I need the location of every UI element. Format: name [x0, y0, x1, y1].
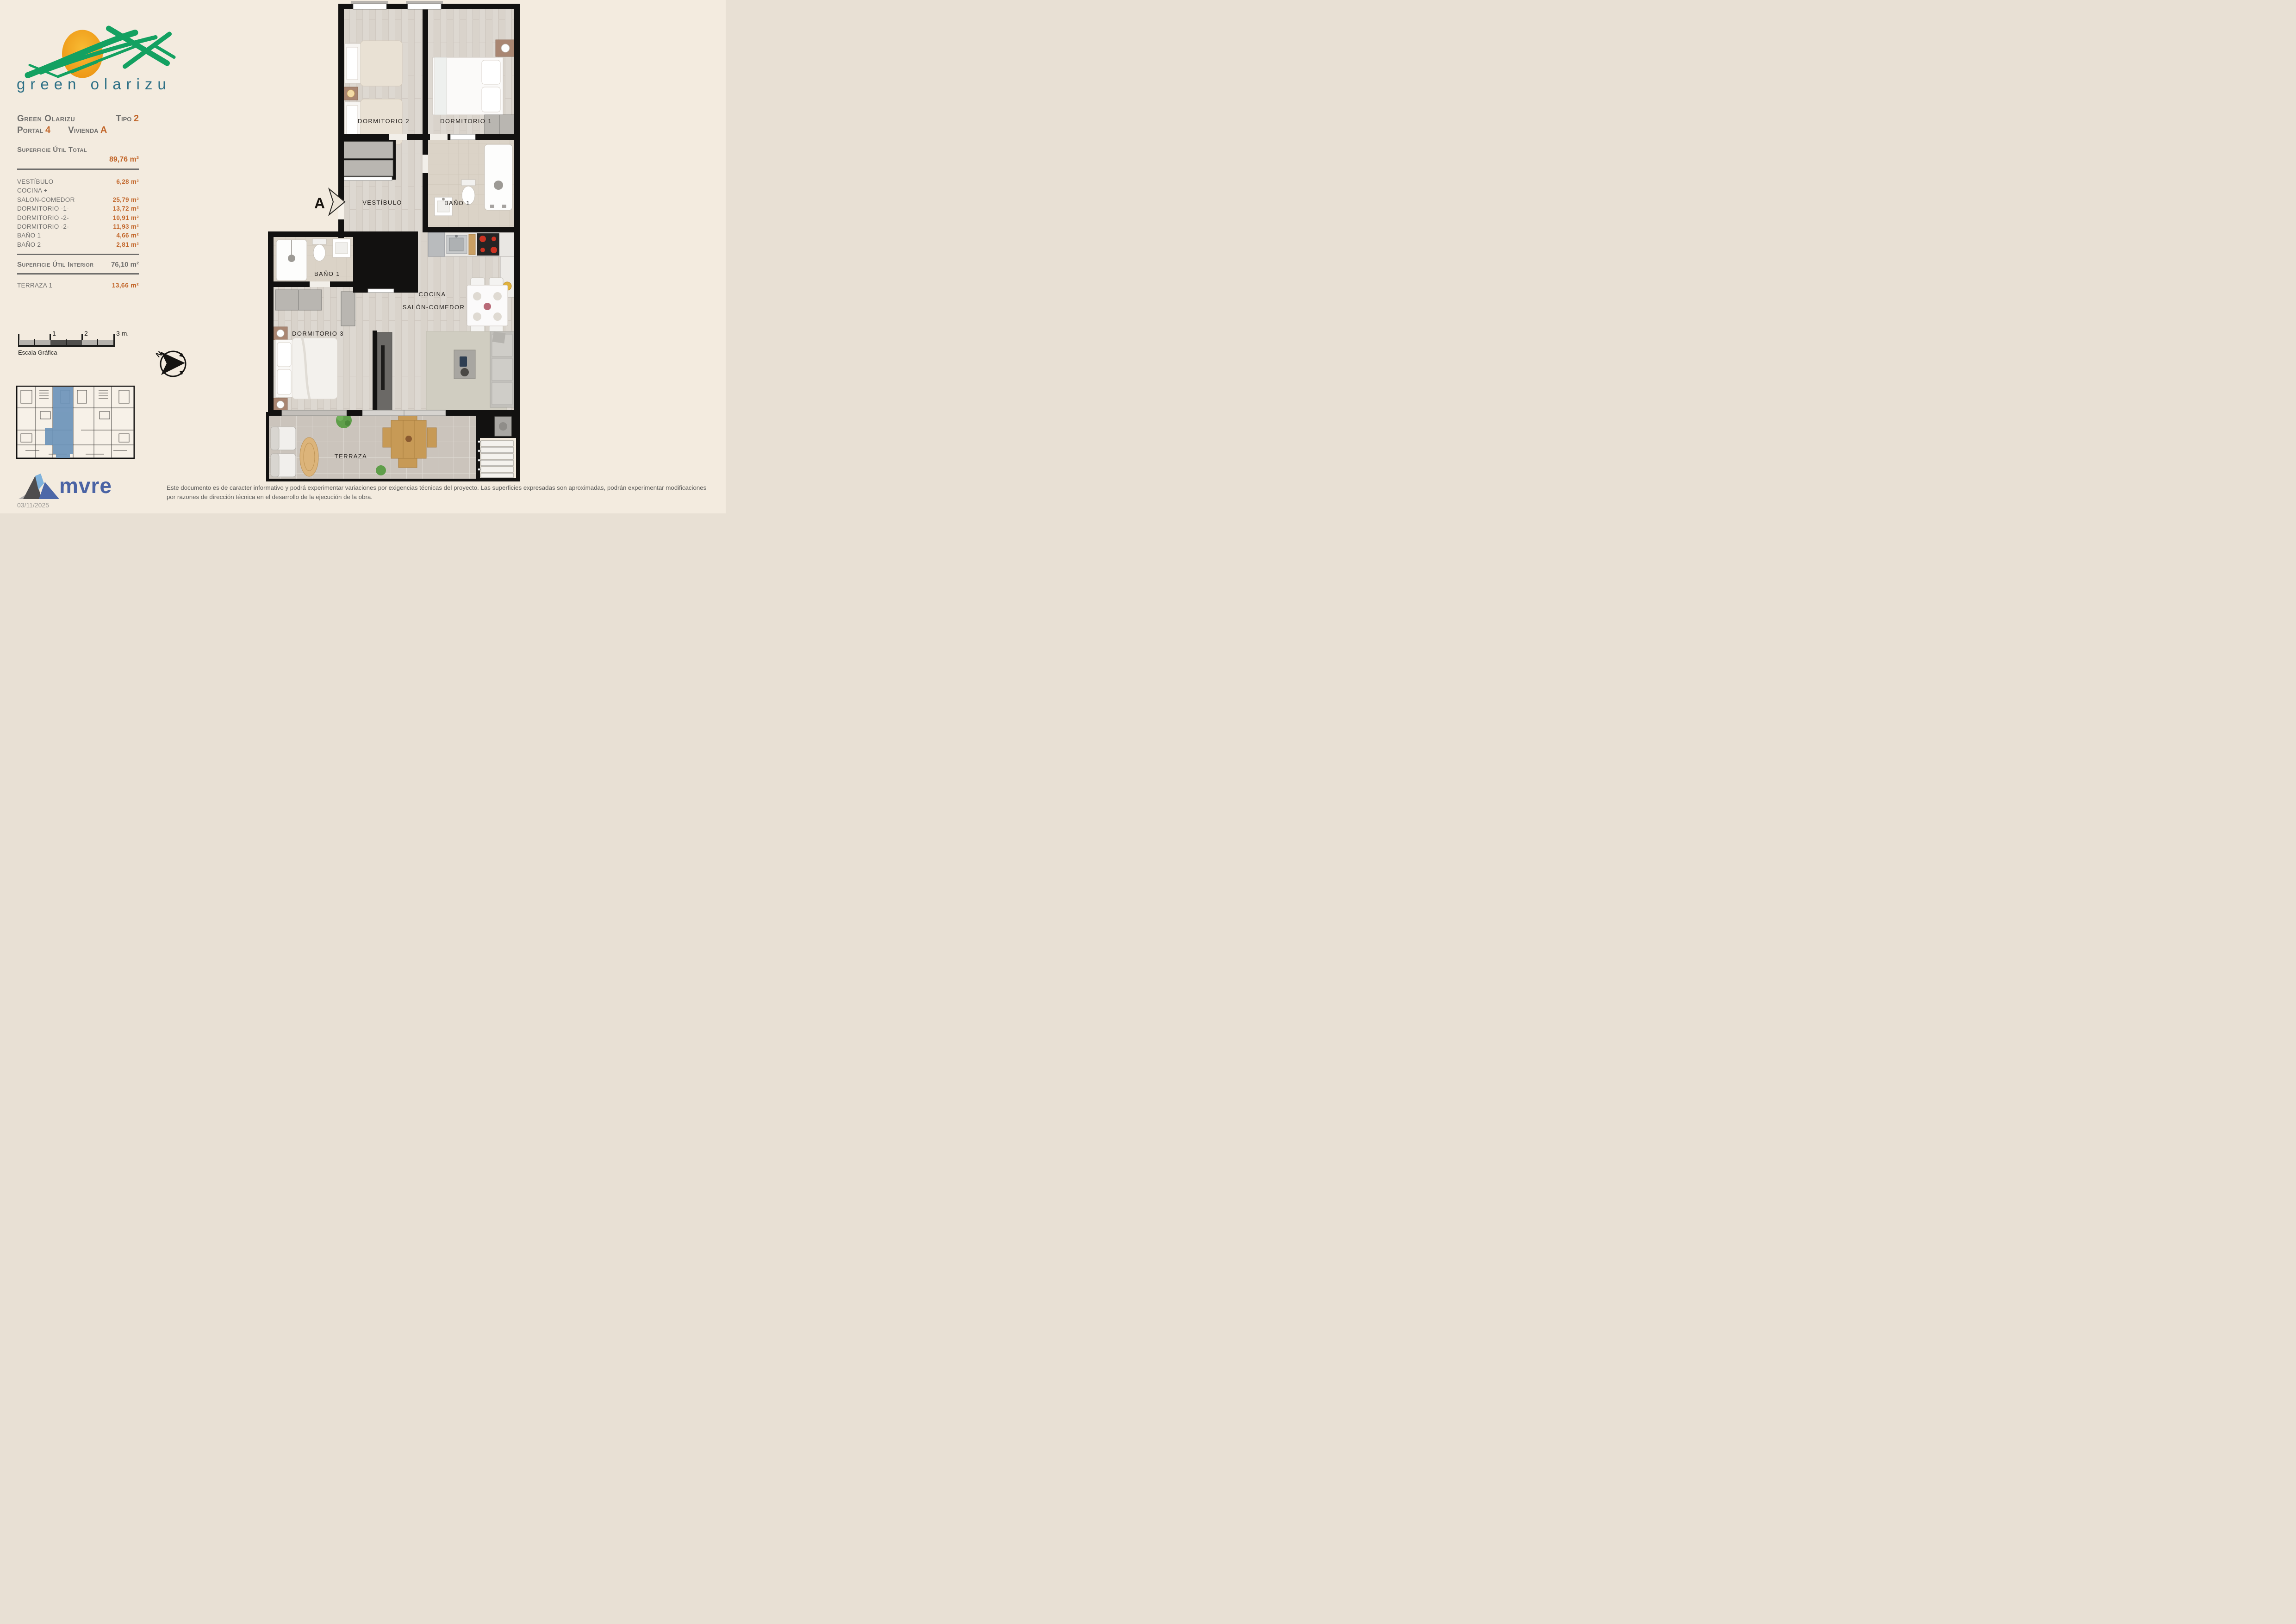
scale-tick-3: 3 m.: [116, 330, 129, 337]
room-name: SALON-COMEDOR: [17, 195, 75, 204]
room-row: COCINA +: [17, 186, 139, 195]
label-dormitorio1: DORMITORIO 1: [440, 118, 492, 125]
room-row: DORMITORIO -2-11,93 m²: [17, 222, 139, 231]
label-dormitorio3: DORMITORIO 3: [292, 330, 344, 337]
brand-wordmark: green olarizu: [17, 75, 171, 93]
room-name: DORMITORIO -2-: [17, 222, 69, 231]
interior-area-row: Superficie Útil Interior 76,10 m²: [17, 261, 139, 269]
room-area-table: VESTÍBULO6,28 m² COCINA + SALON-COMEDOR2…: [17, 177, 139, 249]
divider: [17, 169, 139, 170]
label-cocina: COCINA: [419, 291, 446, 298]
room-name: DORMITORIO -1-: [17, 204, 69, 213]
portal-label: Portal: [17, 125, 43, 135]
room-name: COCINA +: [17, 186, 48, 195]
graphic-scale-bar: 1 2 3 m. Escala Gráfica: [17, 330, 137, 356]
dining-set: [467, 278, 508, 334]
room-name: DORMITORIO -2-: [17, 213, 69, 222]
room-row: DORMITORIO -1-13,72 m²: [17, 204, 139, 213]
terraza-area-row: TERRAZA 1 13,66 m²: [17, 281, 139, 290]
document-date: 03/11/2025: [17, 501, 49, 509]
vivienda-label: Vivienda: [68, 125, 98, 135]
tipo-label: Tipo: [116, 114, 131, 124]
room-name: BAÑO 2: [17, 240, 41, 249]
interior-area-value: 76,10 m²: [111, 261, 139, 269]
room-row: BAÑO 14,66 m²: [17, 231, 139, 240]
vivienda-value: A: [100, 125, 107, 135]
room-row: DORMITORIO -2-10,91 m²: [17, 213, 139, 222]
terrace-floor: [268, 412, 476, 480]
room-name: BAÑO 1: [17, 231, 41, 240]
room-area: 10,91 m²: [113, 213, 139, 222]
brush-strokes-icon: [28, 29, 174, 77]
label-salon: SALÓN-COMEDOR: [403, 304, 465, 311]
section-marker-label: A: [314, 195, 325, 212]
room-area: 4,66 m²: [116, 231, 139, 240]
label-terraza: TERRAZA: [335, 453, 367, 460]
room-area: 2,81 m²: [116, 240, 139, 249]
project-name: Green Olarizu: [17, 114, 75, 124]
divider: [17, 273, 139, 275]
room-area: 25,79 m²: [113, 195, 139, 204]
tipo-value: 2: [134, 113, 139, 124]
room-name: VESTÍBULO: [17, 177, 53, 186]
scale-tick-1: 1: [52, 330, 56, 337]
plan-sheet: green olarizu Green Olarizu Tipo 2 Porta…: [0, 0, 726, 513]
vestibule-closets: [338, 139, 396, 181]
mvre-wordmark: mvre: [59, 473, 112, 498]
terraza-value: 13,66 m²: [112, 281, 139, 290]
room-area: 6,28 m²: [116, 177, 139, 186]
label-bano2: BAÑO 1: [314, 270, 340, 277]
total-area-value: 89,76 m²: [17, 156, 139, 164]
scale-tick-2: 2: [84, 330, 88, 337]
room-row: BAÑO 22,81 m²: [17, 240, 139, 249]
room-row: SALON-COMEDOR25,79 m²: [17, 195, 139, 204]
legal-disclaimer: Este documento es de caracter informativ…: [167, 483, 715, 502]
room-area: 13,72 m²: [113, 204, 139, 213]
room-row: VESTÍBULO6,28 m²: [17, 177, 139, 186]
portal-vivienda-line: Portal 4 Vivienda A: [17, 125, 139, 136]
unit-info-panel: Green Olarizu Tipo 2 Portal 4 Vivienda A…: [17, 113, 139, 290]
scale-caption: Escala Gráfica: [18, 349, 57, 356]
label-bano1: BAÑO 1: [444, 200, 470, 206]
divider: [17, 254, 139, 255]
north-compass-icon: N: [156, 346, 191, 381]
terraza-label: TERRAZA 1: [17, 281, 52, 290]
room-area: 11,93 m²: [113, 222, 139, 231]
portal-value: 4: [45, 125, 50, 135]
apartment-floor-plan: A DORMITORIO 2 DORMITORIO 1 VESTÍBULO BA…: [265, 1, 527, 481]
key-plan: [16, 386, 135, 459]
green-olarizu-logo-icon: [14, 19, 176, 80]
label-vestibulo: VESTÍBULO: [362, 199, 402, 206]
project-type-line: Green Olarizu Tipo 2: [17, 113, 139, 124]
interior-area-label: Superficie Útil Interior: [17, 261, 93, 269]
mvre-logo-icon: [18, 473, 60, 500]
label-dormitorio2: DORMITORIO 2: [358, 118, 410, 125]
total-area-label: Superficie Útil Total: [17, 146, 139, 154]
